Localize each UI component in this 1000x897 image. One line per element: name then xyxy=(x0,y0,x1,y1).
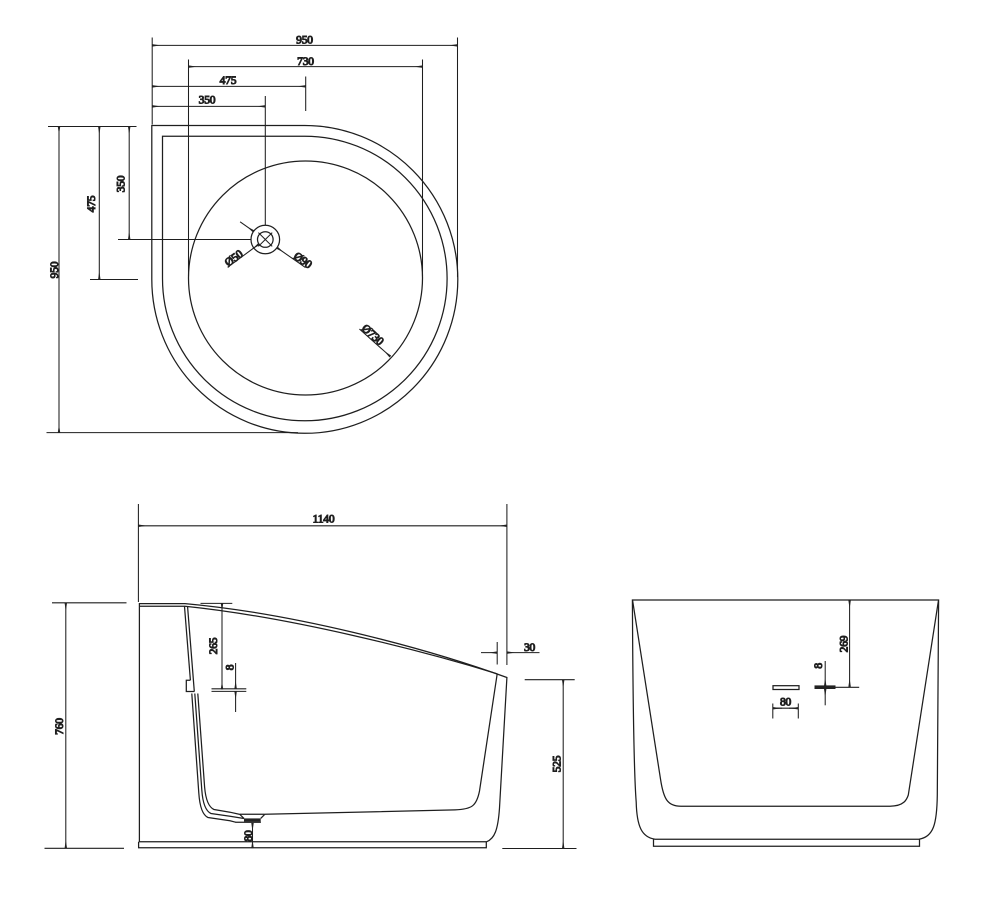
svg-text:950: 950 xyxy=(296,34,313,46)
svg-text:350: 350 xyxy=(116,175,128,192)
svg-text:350: 350 xyxy=(199,95,216,107)
svg-text:269: 269 xyxy=(839,635,851,652)
svg-text:Ø730: Ø730 xyxy=(359,323,386,349)
svg-text:475: 475 xyxy=(220,75,237,87)
svg-text:80: 80 xyxy=(243,830,255,842)
svg-text:265: 265 xyxy=(208,637,220,654)
svg-text:8: 8 xyxy=(813,663,825,669)
svg-text:730: 730 xyxy=(297,56,314,68)
svg-text:30: 30 xyxy=(524,642,536,654)
svg-text:80: 80 xyxy=(780,697,792,709)
svg-text:8: 8 xyxy=(225,664,237,670)
svg-text:525: 525 xyxy=(552,755,564,772)
svg-text:760: 760 xyxy=(54,718,66,735)
svg-text:475: 475 xyxy=(86,195,98,212)
svg-text:950: 950 xyxy=(49,261,61,278)
svg-text:Ø90: Ø90 xyxy=(291,250,314,271)
svg-text:Ø50: Ø50 xyxy=(223,248,246,269)
svg-text:1140: 1140 xyxy=(313,514,335,526)
